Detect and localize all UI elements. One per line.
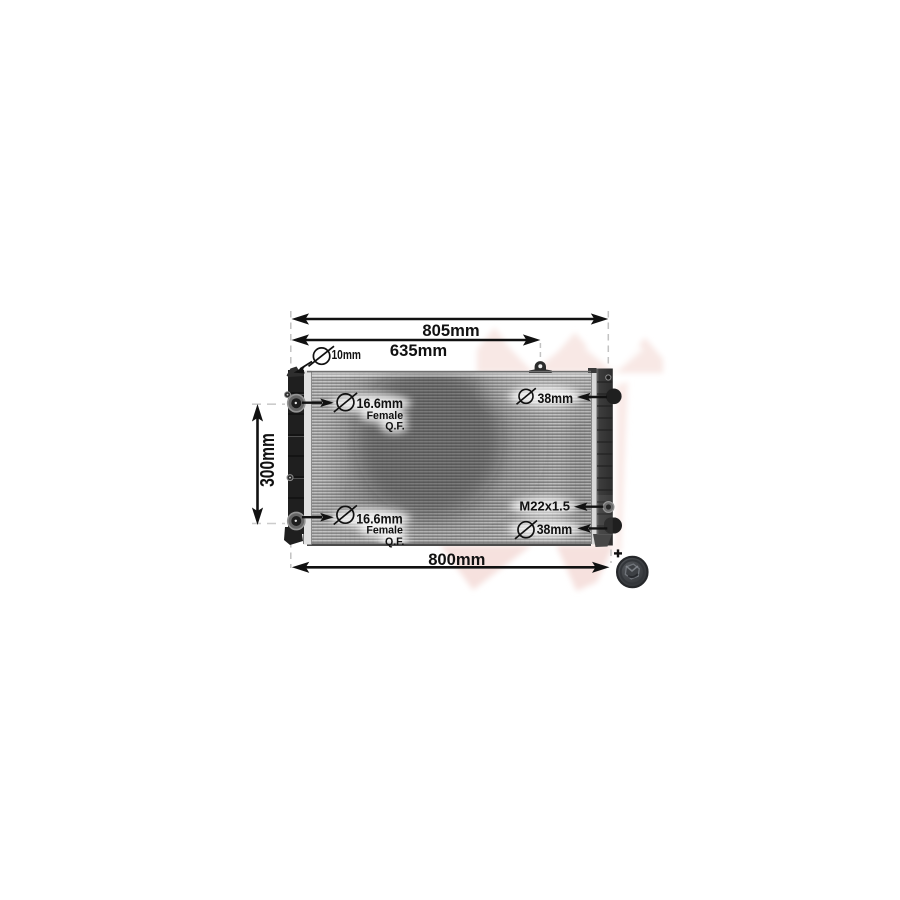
- svg-text:10mm: 10mm: [332, 348, 362, 362]
- svg-text:38mm: 38mm: [538, 391, 574, 406]
- svg-text:800mm: 800mm: [428, 550, 485, 569]
- svg-text:Q.F.: Q.F.: [385, 536, 404, 548]
- svg-text:Female: Female: [366, 524, 403, 536]
- svg-text:300mm: 300mm: [256, 433, 278, 487]
- svg-text:635mm: 635mm: [390, 341, 447, 360]
- svg-text:Q.F.: Q.F.: [385, 421, 404, 433]
- svg-text:38mm: 38mm: [537, 522, 573, 537]
- svg-text:805mm: 805mm: [422, 321, 479, 340]
- svg-text:M22x1.5: M22x1.5: [519, 499, 570, 514]
